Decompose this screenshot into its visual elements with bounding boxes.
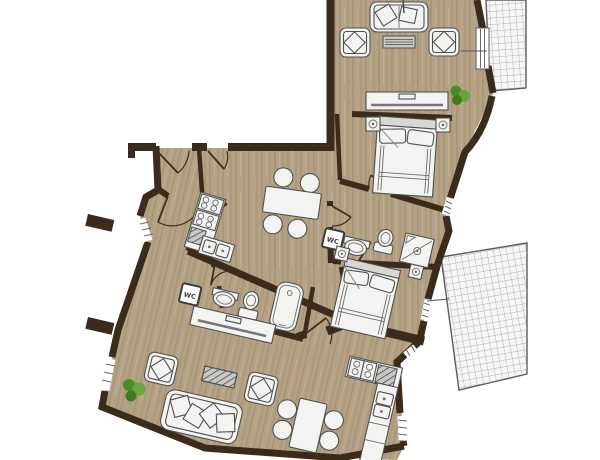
nightstand-2-right [408,264,424,280]
window-living-lower-2 [105,359,111,390]
lamp-stem [403,0,404,13]
floor-plan-canvas: WC [0,0,600,460]
wall-stub-left-2 [85,317,114,335]
nightstand-1-right [436,118,450,132]
balcony-lower-tile-grid [441,243,527,390]
wall-bedroom1-left [337,114,340,180]
armchair-upper-left [340,28,370,57]
armchair-lower-left [143,351,179,387]
sofa-pillow-4 [216,414,235,433]
bed-pillow [407,129,435,146]
sofa-upper [370,2,428,32]
wall-stub-top-left [128,143,135,158]
nightstand-1-left [366,117,380,131]
tv-sideboard-upper [366,92,448,110]
double-bed-1 [373,116,438,197]
wall-stub-left-1 [85,214,114,232]
party-wall-stubs [85,214,114,335]
wall-kitchen-lower-corner [403,441,404,446]
floor-plan-svg: WC [0,0,600,460]
armchair-lower-right [243,371,279,407]
balcony-door-upper [476,28,489,69]
sofa-pillow-2 [399,6,418,23]
wall-living-upper-right-mid [488,66,493,93]
coffee-table-upper [383,36,415,48]
wc-sign-lower: WC [179,283,202,306]
shower-upper [399,233,434,268]
armchair-upper-right [429,28,459,56]
balcony-lower [441,243,527,390]
nightstand-2-left [334,246,350,262]
